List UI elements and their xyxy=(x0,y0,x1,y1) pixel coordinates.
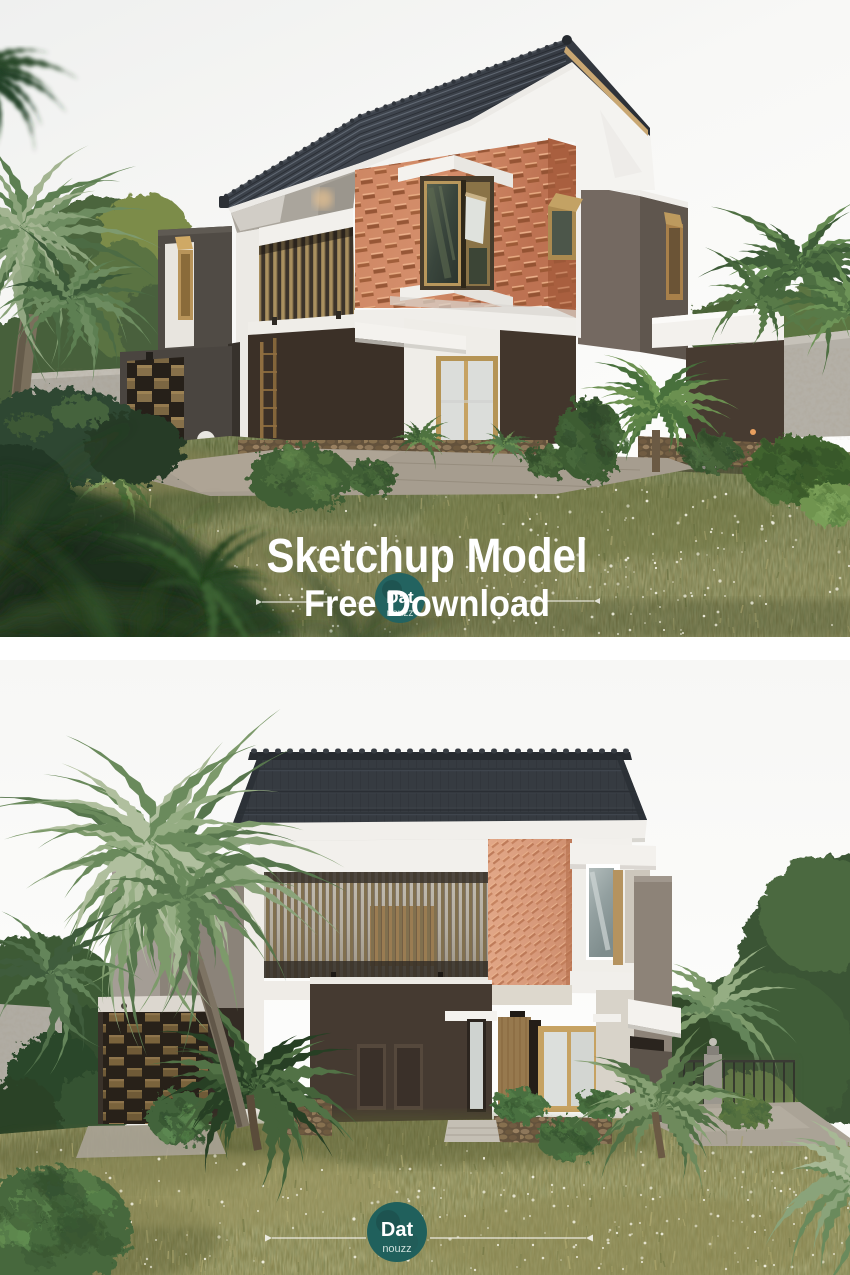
svg-text:Free Download: Free Download xyxy=(304,583,550,624)
svg-text:Dat: Dat xyxy=(381,1219,414,1241)
svg-text:Sketchup Model: Sketchup Model xyxy=(267,530,588,583)
svg-text:nouzz: nouzz xyxy=(382,1243,411,1255)
